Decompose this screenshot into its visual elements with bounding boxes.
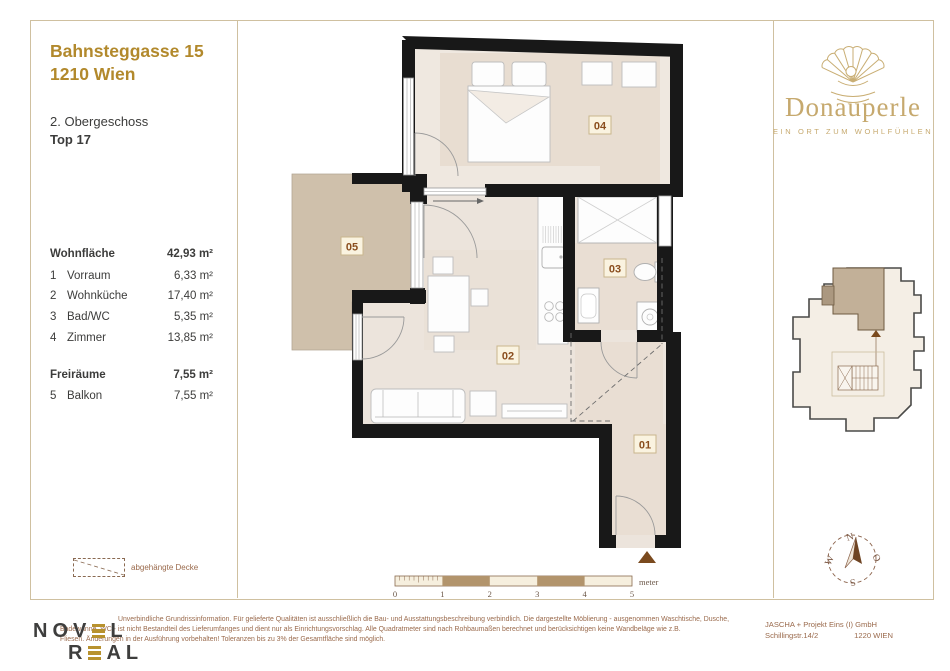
logo-e-bars <box>88 646 101 661</box>
company-name: JASCHA + Projekt Eins (I) GmbH <box>765 619 893 630</box>
left-column-divider <box>237 20 238 598</box>
company-block: JASCHA + Projekt Eins (I) GmbH Schilling… <box>765 619 893 641</box>
company-street: Schillingstr.14/2 <box>765 630 818 641</box>
company-city: 1220 WIEN <box>854 630 893 641</box>
unit-label: Top 17 <box>50 131 91 149</box>
area-table: Wohnfläche 42,93 m² 1Vorraum6,33 m² 2Woh… <box>50 248 213 411</box>
outdoor-area-header: Freiräume 7,55 m² <box>50 369 213 381</box>
suspended-ceiling-legend-swatch <box>73 558 125 577</box>
living-area-header: Wohnfläche 42,93 m² <box>50 248 213 260</box>
address-title: Bahnsteggasse 15 1210 Wien <box>50 40 204 86</box>
area-row: 1Vorraum6,33 m² <box>50 270 213 282</box>
brand-name: Donauperle <box>773 92 933 123</box>
area-row: 3Bad/WC5,35 m² <box>50 311 213 323</box>
logo-e-bars <box>92 624 105 639</box>
area-row: 2Wohnküche17,40 m² <box>50 290 213 302</box>
floor-plan-sheet: 01 02 03 04 05 0 <box>0 0 950 671</box>
area-row: 5Balkon7,55 m² <box>50 390 213 402</box>
disclaimer-text: Unverbindliche Grundrissinformation. Für… <box>60 615 744 644</box>
brand-tagline: EIN ORT ZUM WOHLFÜHLEN <box>773 127 933 136</box>
address-line-2: 1210 Wien <box>50 63 204 86</box>
area-row: 4Zimmer13,85 m² <box>50 332 213 344</box>
address-line-1: Bahnsteggasse 15 <box>50 40 204 63</box>
floor-label: 2. Obergeschoss <box>50 113 148 131</box>
novel-real-logo: NOV L R AL <box>33 620 143 664</box>
suspended-ceiling-legend-label: abgehängte Decke <box>131 563 198 572</box>
